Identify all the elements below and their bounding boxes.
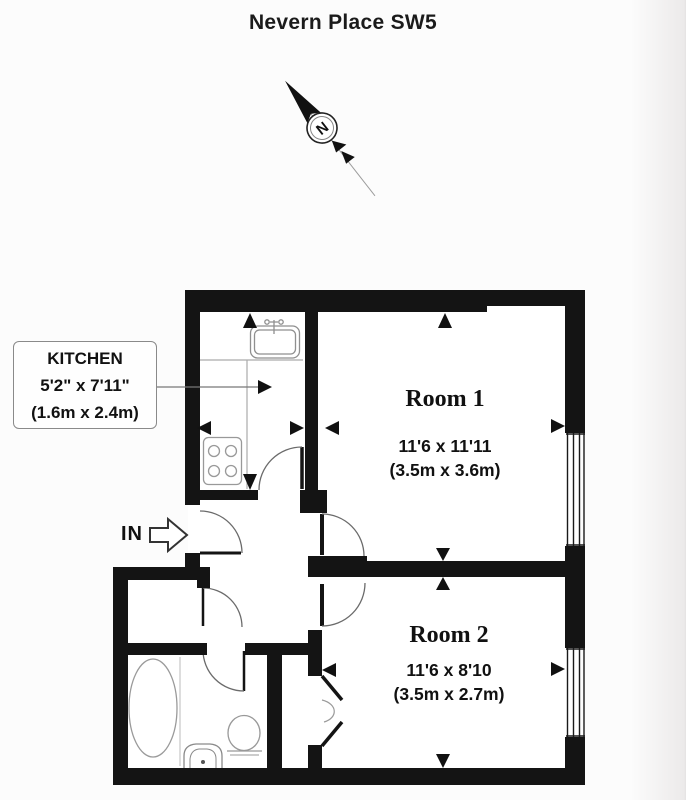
compass-tail: [338, 147, 355, 164]
wall-segment: [197, 580, 210, 588]
wall-segment: [113, 567, 128, 768]
wall-segment: [113, 643, 207, 655]
wall-segment: [308, 561, 585, 577]
room2-size-imperial: 11'6 x 8'10: [349, 658, 549, 682]
room1-size-imperial: 11'6 x 11'11: [345, 434, 545, 458]
room1-name: Room 1: [345, 386, 545, 413]
compass-icon: N: [273, 71, 387, 205]
room2-size-metric: (3.5m x 2.7m): [349, 682, 549, 706]
wall-segment: [267, 643, 282, 768]
wall-notch: [487, 306, 565, 312]
kitchen-callout: KITCHEN 5'2" x 7'11" (1.6m x 2.4m): [13, 341, 157, 429]
kitchen-size-imperial: 5'2" x 7'11": [40, 372, 129, 399]
wall-segment: [305, 290, 318, 490]
wall-segment: [300, 490, 327, 513]
wall-segment: [185, 553, 200, 580]
entrance-label: IN: [121, 523, 143, 546]
room1-dims: 11'6 x 11'11 (3.5m x 3.6m): [345, 434, 545, 482]
wall-segment: [308, 745, 322, 768]
kitchen-name: KITCHEN: [47, 345, 123, 372]
floorplan-page: Nevern Place SW5: [0, 0, 686, 800]
wall-segment: [113, 768, 585, 785]
wall-segment: [185, 490, 258, 500]
entrance-arrow-icon: [150, 519, 187, 551]
room2-dims: 11'6 x 8'10 (3.5m x 2.7m): [349, 658, 549, 706]
wall-segment: [565, 290, 585, 433]
wall-segment: [185, 290, 200, 505]
room2-name: Room 2: [349, 622, 549, 649]
room1-size-metric: (3.5m x 3.6m): [345, 458, 545, 482]
kitchen-size-metric: (1.6m x 2.4m): [31, 399, 139, 426]
